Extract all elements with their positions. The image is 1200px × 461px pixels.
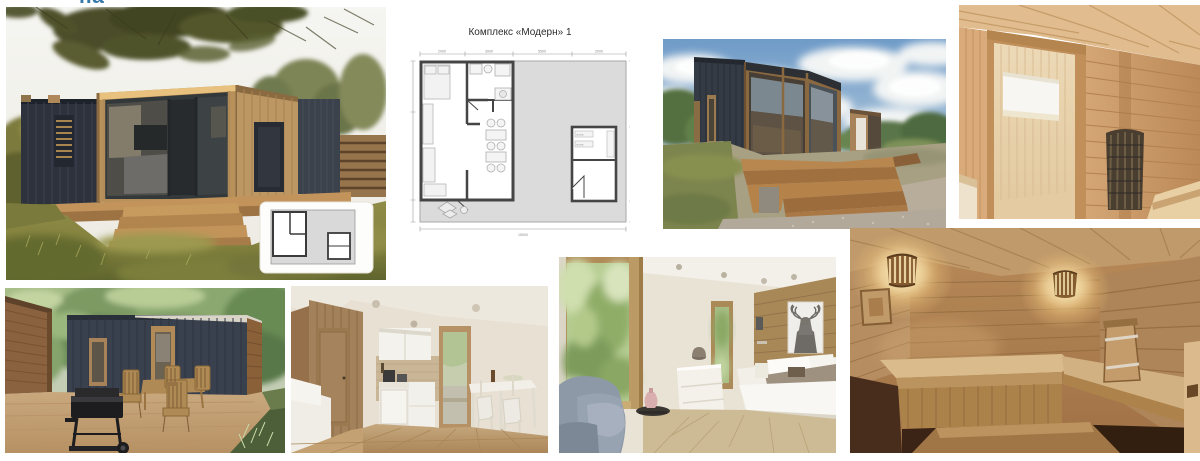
svg-text:15000: 15000 bbox=[518, 233, 528, 237]
svg-text:5500: 5500 bbox=[538, 50, 546, 54]
svg-text:полка: полка bbox=[576, 143, 584, 147]
svg-text:2000: 2000 bbox=[595, 50, 603, 54]
svg-text:полка: полка bbox=[576, 133, 584, 137]
svg-text:3000: 3000 bbox=[485, 50, 493, 54]
svg-text:2000: 2000 bbox=[438, 50, 446, 54]
